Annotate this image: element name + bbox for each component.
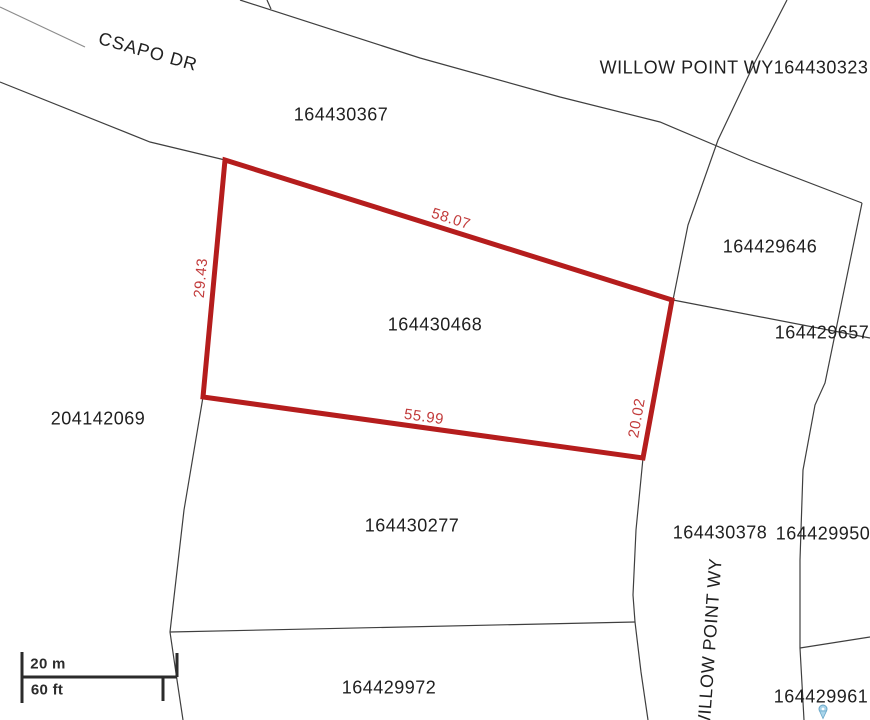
map-line-layer xyxy=(0,0,870,720)
boundary-277-972 xyxy=(170,622,635,632)
selected-parcel-outline[interactable] xyxy=(203,160,672,458)
map-pin-icon xyxy=(819,705,827,719)
survey-tick xyxy=(267,0,271,9)
parcel-map[interactable]: 20 m 60 ft CSAPO DRWILLOW POINT WY164430… xyxy=(0,0,870,720)
csapo-dr-south-edge xyxy=(0,82,225,160)
boundary-950-961 xyxy=(800,637,870,648)
willow-point-east-edge xyxy=(800,203,862,720)
scale-bar xyxy=(22,652,177,703)
willow-point-west-edge-upper xyxy=(673,0,787,300)
west-boundary-line xyxy=(170,397,203,720)
csapo-dr-north-edge xyxy=(0,7,85,47)
north-boundary-line xyxy=(240,0,862,203)
willow-point-west-edge-lower xyxy=(633,458,648,720)
